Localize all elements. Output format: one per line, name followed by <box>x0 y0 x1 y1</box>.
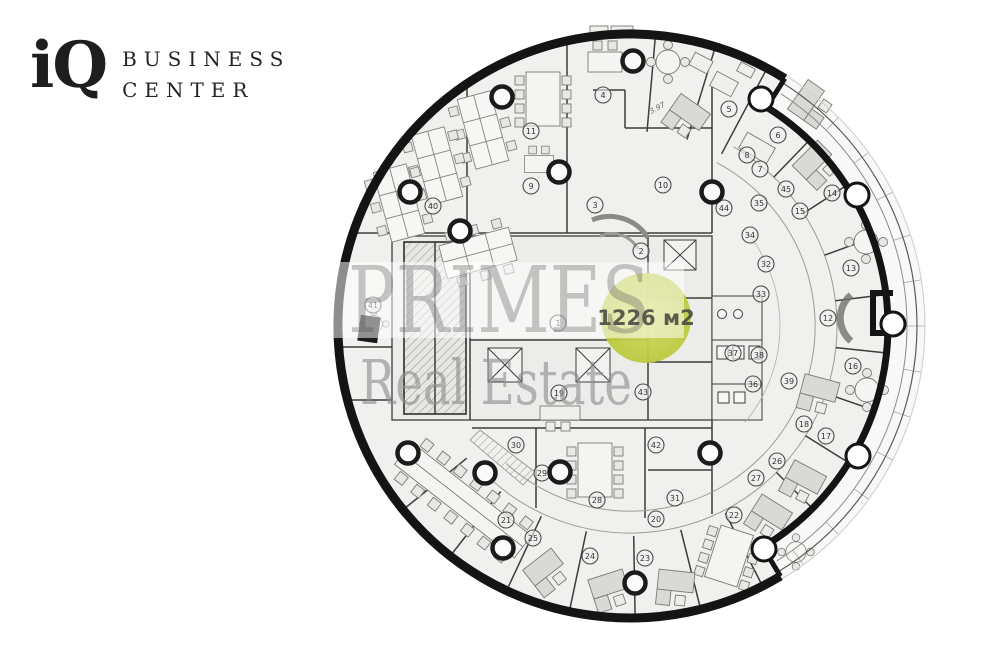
room-number-badge: 39 <box>781 373 797 389</box>
room-number-badge: 14 <box>824 185 840 201</box>
room-number-badge: 22 <box>726 507 742 523</box>
svg-text:6: 6 <box>775 131 780 140</box>
column <box>550 462 571 483</box>
room-number-badge: 11 <box>523 123 539 139</box>
svg-text:16: 16 <box>848 362 858 371</box>
svg-text:17: 17 <box>821 432 831 441</box>
svg-text:45: 45 <box>781 185 791 194</box>
column <box>700 443 721 464</box>
room-number-badge: 21 <box>498 512 514 528</box>
room-number-badge: 30 <box>508 437 524 453</box>
room-number-badge: 17 <box>818 428 834 444</box>
room-number-badge: 45 <box>778 181 794 197</box>
room-number-badge: 12 <box>820 310 836 326</box>
svg-text:13: 13 <box>846 264 856 273</box>
room-number-badge: 33 <box>753 286 769 302</box>
svg-text:10: 10 <box>658 181 668 190</box>
room-number-badge: 38 <box>751 347 767 363</box>
svg-text:26: 26 <box>772 457 782 466</box>
room-number-badge: 36 <box>745 376 761 392</box>
room-number-badge: 37 <box>725 345 741 361</box>
svg-text:44: 44 <box>719 204 729 213</box>
wall-column <box>881 312 905 336</box>
room-number-badge: 5 <box>721 101 737 117</box>
svg-text:7: 7 <box>757 165 762 174</box>
svg-text:3: 3 <box>592 201 597 210</box>
svg-text:31: 31 <box>670 494 680 503</box>
room-number-badge: 27 <box>748 470 764 486</box>
column <box>400 182 421 203</box>
room-number-badge: 16 <box>845 358 861 374</box>
svg-text:21: 21 <box>501 516 511 525</box>
svg-text:12: 12 <box>823 314 833 323</box>
room-number-badge: 34 <box>742 227 758 243</box>
svg-text:43: 43 <box>638 388 648 397</box>
room-number-badge: 18 <box>796 416 812 432</box>
column <box>475 463 496 484</box>
svg-text:39: 39 <box>784 377 794 386</box>
svg-text:9: 9 <box>528 182 533 191</box>
svg-text:36: 36 <box>748 380 758 389</box>
room-number-badge: 28 <box>589 492 605 508</box>
wall-column <box>845 183 869 207</box>
room-number-badge: 40 <box>425 198 441 214</box>
svg-text:35: 35 <box>754 199 764 208</box>
watermark-line2: Real Estate <box>360 346 632 419</box>
svg-text:15: 15 <box>795 207 805 216</box>
svg-text:38: 38 <box>754 351 764 360</box>
wall-column <box>846 444 870 468</box>
svg-text:20: 20 <box>651 515 661 524</box>
svg-text:11: 11 <box>526 127 536 136</box>
svg-text:22: 22 <box>729 511 739 520</box>
wall-column <box>749 87 773 111</box>
svg-text:30: 30 <box>511 441 521 450</box>
svg-text:14: 14 <box>827 189 837 198</box>
svg-text:34: 34 <box>745 231 755 240</box>
room-number-badge: 9 <box>523 178 539 194</box>
room-number-badge: 35 <box>751 195 767 211</box>
watermark: PRIMES Real Estate <box>326 247 684 419</box>
svg-text:29: 29 <box>537 469 547 478</box>
wall-column <box>752 537 776 561</box>
room-number-badge: 31 <box>667 490 683 506</box>
svg-text:24: 24 <box>585 552 595 561</box>
column <box>492 87 513 108</box>
column <box>625 573 646 594</box>
room-number-badge: 26 <box>769 453 785 469</box>
room-number-badge: 20 <box>648 511 664 527</box>
room-number-badge: 6 <box>770 127 786 143</box>
svg-text:23: 23 <box>640 554 650 563</box>
column <box>398 443 419 464</box>
svg-text:18: 18 <box>799 420 809 429</box>
svg-text:37: 37 <box>728 349 738 358</box>
room-number-badge: 24 <box>582 548 598 564</box>
room-number-badge: 7 <box>752 161 768 177</box>
area-label: 1226 м2 <box>597 306 695 330</box>
room-number-badge: 8 <box>739 147 755 163</box>
screenshot: iQ BUSINESS CENTER <box>0 0 1000 656</box>
svg-text:25: 25 <box>528 534 538 543</box>
svg-text:4: 4 <box>600 91 605 100</box>
room-number-badge: 15 <box>792 203 808 219</box>
floor-plan-svg: 1234567891011121314151617181920212223242… <box>0 0 1000 656</box>
room-number-badge: 13 <box>843 260 859 276</box>
svg-text:42: 42 <box>651 441 661 450</box>
room-number-badge: 4 <box>595 87 611 103</box>
svg-text:8: 8 <box>744 151 749 160</box>
column <box>493 538 514 559</box>
svg-text:32: 32 <box>761 260 771 269</box>
watermark-line1: PRIMES <box>348 247 650 354</box>
room-number-badge: 25 <box>525 530 541 546</box>
room-number-badge: 10 <box>655 177 671 193</box>
svg-text:27: 27 <box>751 474 761 483</box>
svg-text:33: 33 <box>756 290 766 299</box>
column <box>450 221 471 242</box>
room-number-badge: 32 <box>758 256 774 272</box>
room-number-badge: 23 <box>637 550 653 566</box>
svg-text:28: 28 <box>592 496 602 505</box>
svg-text:40: 40 <box>428 202 438 211</box>
room-number-badge: 43 <box>635 384 651 400</box>
column <box>623 51 644 72</box>
room-number-badge: 42 <box>648 437 664 453</box>
room-number-badge: 3 <box>587 197 603 213</box>
svg-text:5: 5 <box>726 105 731 114</box>
column <box>549 162 570 183</box>
column <box>702 182 723 203</box>
